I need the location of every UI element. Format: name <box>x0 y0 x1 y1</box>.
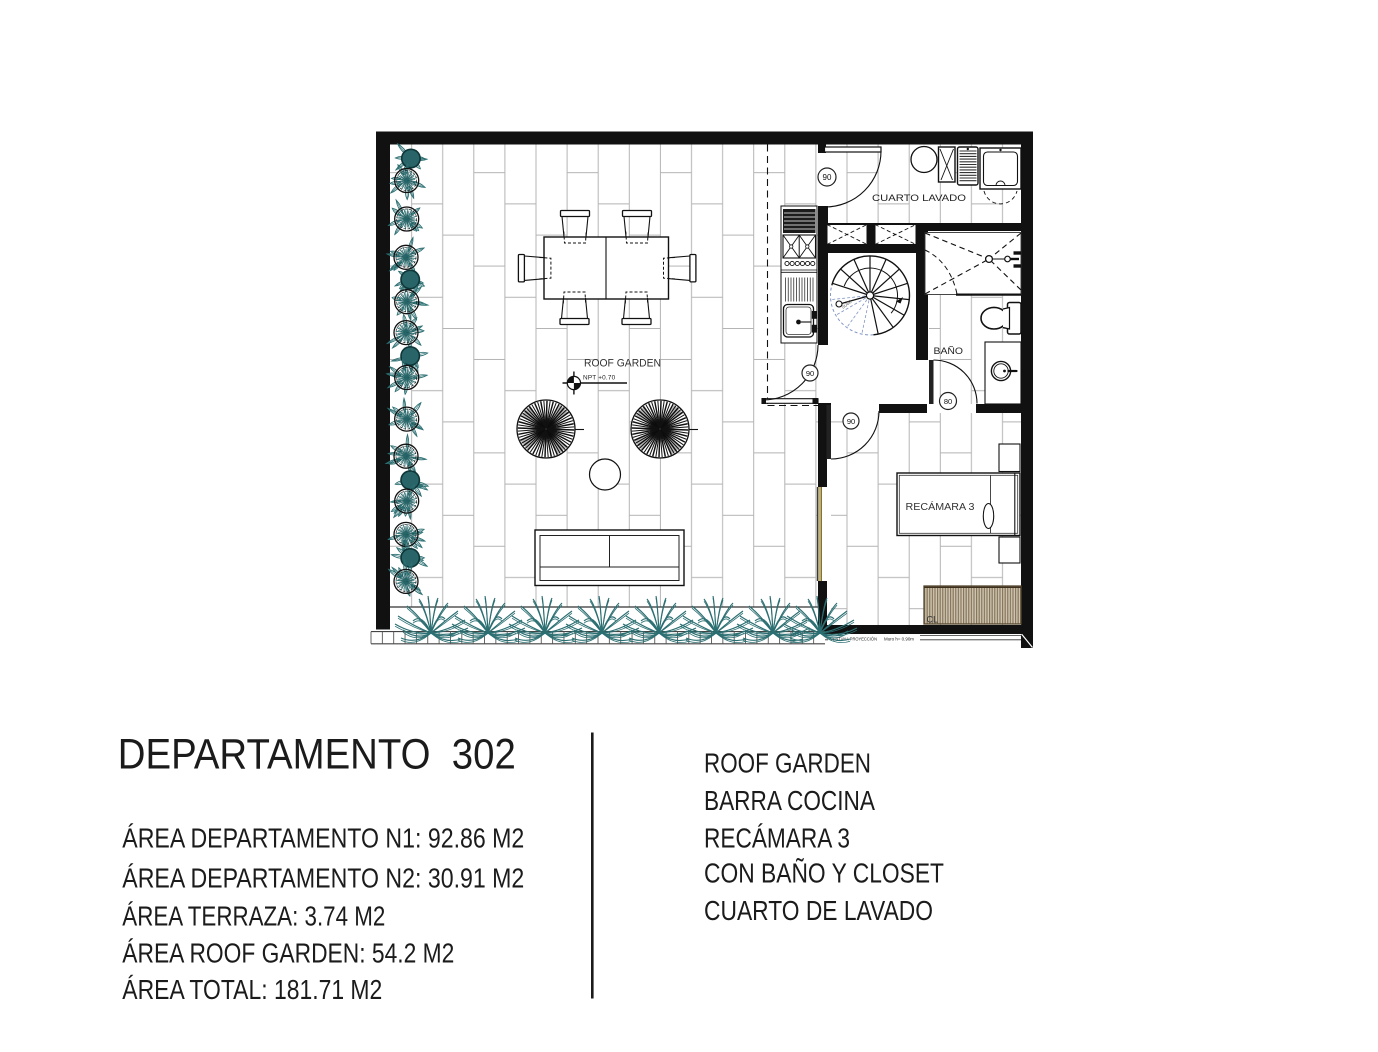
svg-text:NPT +0.70: NPT +0.70 <box>583 375 616 382</box>
svg-text:90: 90 <box>806 369 814 378</box>
svg-text:80: 80 <box>944 397 952 406</box>
svg-text:90: 90 <box>823 173 832 182</box>
svg-text:DEPARTAMENTO 302: DEPARTAMENTO 302 <box>118 730 516 778</box>
svg-text:CL: CL <box>927 615 939 625</box>
svg-text:90: 90 <box>847 417 855 426</box>
svg-text:RECÁMARA 3: RECÁMARA 3 <box>906 502 976 513</box>
svg-text:VENTANA PROYECCIÓN: VENTANA PROYECCIÓN <box>830 635 877 642</box>
svg-text:CUARTO LAVADO: CUARTO LAVADO <box>872 193 966 204</box>
svg-text:ÁREA TOTAL: 181.71 M2: ÁREA TOTAL: 181.71 M2 <box>122 974 382 1005</box>
svg-text:ROOF GARDEN: ROOF GARDEN <box>704 748 871 779</box>
svg-text:BAÑO: BAÑO <box>934 346 964 356</box>
svg-text:BARRA COCINA: BARRA COCINA <box>704 785 875 816</box>
svg-text:CON BAÑO Y CLOSET: CON BAÑO Y CLOSET <box>704 857 944 888</box>
svg-text:CUARTO DE LAVADO: CUARTO DE LAVADO <box>704 895 933 926</box>
svg-text:ROOF GARDEN: ROOF GARDEN <box>584 357 661 369</box>
svg-text:ÁREA ROOF GARDEN: 54.2 M2: ÁREA ROOF GARDEN: 54.2 M2 <box>122 937 454 968</box>
svg-text:RECÁMARA 3: RECÁMARA 3 <box>704 822 850 853</box>
svg-text:ÁREA TERRAZA: 3.74 M2: ÁREA TERRAZA: 3.74 M2 <box>122 901 385 932</box>
svg-text:Muro h= 0.90m: Muro h= 0.90m <box>884 636 914 642</box>
svg-text:ÁREA DEPARTAMENTO N2: 30.91 M2: ÁREA DEPARTAMENTO N2: 30.91 M2 <box>122 863 524 894</box>
svg-text:ÁREA DEPARTAMENTO N1: 92.86 M2: ÁREA DEPARTAMENTO N1: 92.86 M2 <box>122 823 524 854</box>
